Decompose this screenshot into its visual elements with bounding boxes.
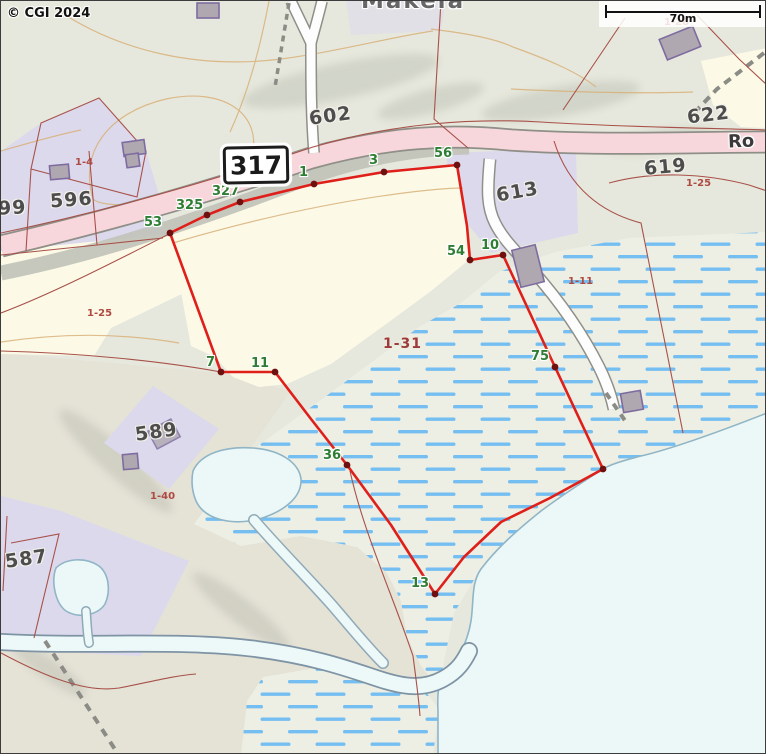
road-number-text: 317 [230, 150, 283, 180]
pond-left [54, 560, 109, 615]
scale-bar: 70m [599, 1, 766, 27]
stream-left-fill [86, 611, 89, 643]
basemap-graphics [1, 1, 766, 754]
scale-bar-label: 70m [599, 12, 766, 25]
road-number-sign: 317 [223, 145, 290, 184]
map-canvas[interactable]: Mäkelä Ro 596 99 602 613 619 622 589 587… [0, 0, 766, 754]
